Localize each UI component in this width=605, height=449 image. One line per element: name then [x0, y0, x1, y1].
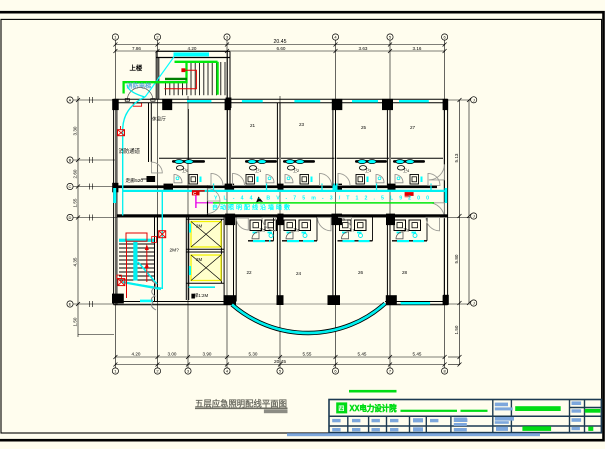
svg-text:5.80: 5.80	[454, 254, 459, 263]
svg-text:2: 2	[156, 369, 159, 374]
svg-text:5.13: 5.13	[454, 153, 459, 162]
svg-text:消防通道: 消防通道	[119, 147, 141, 155]
svg-text:5.30: 5.30	[249, 352, 258, 357]
svg-text:6: 6	[443, 35, 446, 40]
svg-text:四: 四	[338, 405, 344, 412]
svg-text:3.16: 3.16	[413, 46, 422, 51]
svg-text:5.45: 5.45	[358, 352, 367, 357]
svg-text:2M: 2M	[196, 257, 202, 262]
svg-text:3.30: 3.30	[73, 126, 78, 135]
svg-text:走廊520: 走廊520	[126, 177, 144, 184]
svg-text:2M?: 2M?	[170, 248, 180, 254]
svg-text:1.50: 1.50	[73, 317, 78, 326]
svg-text:4.20: 4.20	[132, 352, 141, 357]
svg-text:五层应急照明配线平面图: 五层应急照明配线平面图	[195, 397, 287, 408]
svg-text:23: 23	[299, 122, 305, 127]
svg-text:C: C	[69, 184, 72, 189]
svg-text:3.63: 3.63	[359, 46, 368, 51]
svg-text:2M: 2M	[196, 224, 202, 229]
svg-text:7.86: 7.86	[132, 46, 141, 51]
svg-text:卫6: 卫6	[293, 228, 300, 233]
svg-text:6: 6	[334, 369, 337, 374]
svg-text:J: J	[473, 97, 475, 102]
svg-text:卫1: 卫1	[255, 168, 262, 173]
svg-text:A: A	[69, 98, 72, 103]
svg-text:休息厅: 休息厅	[152, 116, 166, 123]
svg-text:28: 28	[402, 270, 408, 275]
svg-text:卫2: 卫2	[293, 168, 300, 173]
svg-text:消防电梯: 消防电梯	[127, 82, 153, 90]
svg-text:20.45: 20.45	[274, 39, 287, 45]
svg-text:3: 3	[187, 369, 190, 374]
svg-text:6.60: 6.60	[277, 46, 286, 51]
svg-text:卫4: 卫4	[403, 168, 410, 173]
svg-text:梯1:2M: 梯1:2M	[194, 292, 208, 299]
svg-text:1.50: 1.50	[454, 325, 459, 334]
svg-text:5.45: 5.45	[413, 352, 422, 357]
svg-text:自动照明配线沿墙暗敷: 自动照明配线沿墙暗敷	[212, 203, 291, 211]
svg-text:1.55: 1.55	[73, 198, 78, 207]
svg-text:4: 4	[334, 35, 337, 40]
svg-text:B: B	[69, 158, 72, 163]
svg-text:8: 8	[443, 369, 446, 374]
svg-text:24: 24	[296, 271, 302, 276]
svg-text:25: 25	[361, 125, 367, 130]
svg-text:22: 22	[247, 270, 253, 275]
svg-text:5: 5	[279, 369, 282, 374]
svg-text:YL-44-BV-75m-3/T12.5L9200: YL-44-BV-75m-3/T12.5L9200	[214, 196, 429, 202]
svg-text:XX电力设计院: XX电力设计院	[350, 403, 397, 413]
svg-text:3.00: 3.00	[168, 352, 177, 357]
svg-text:27: 27	[410, 125, 416, 130]
svg-text:上楼: 上楼	[130, 63, 143, 72]
svg-text:J: J	[473, 214, 475, 219]
svg-text:卫3: 卫3	[365, 168, 372, 173]
svg-text:5: 5	[389, 35, 392, 40]
svg-text:卫7: 卫7	[349, 228, 356, 233]
svg-text:1: 1	[114, 369, 117, 374]
svg-text:1: 1	[114, 35, 117, 40]
svg-text:4.35: 4.35	[73, 257, 78, 266]
svg-text:4: 4	[226, 369, 229, 374]
svg-text:2: 2	[156, 35, 159, 40]
svg-text:3.90: 3.90	[203, 352, 212, 357]
svg-text:21: 21	[250, 123, 256, 128]
svg-text:4.20: 4.20	[188, 46, 197, 51]
svg-text:E: E	[69, 302, 72, 307]
svg-text:2.60: 2.60	[73, 169, 78, 178]
svg-text:3: 3	[226, 35, 229, 40]
svg-text:7: 7	[389, 369, 392, 374]
svg-text:5.55: 5.55	[303, 352, 312, 357]
svg-text:J: J	[473, 301, 475, 306]
svg-text:20.45: 20.45	[274, 359, 286, 365]
svg-text:26: 26	[358, 270, 364, 275]
svg-text:卫8: 卫8	[403, 228, 410, 233]
svg-text:D: D	[69, 215, 72, 220]
svg-text:卫0: 卫0	[182, 168, 189, 173]
svg-text:卫5: 卫5	[259, 228, 266, 233]
